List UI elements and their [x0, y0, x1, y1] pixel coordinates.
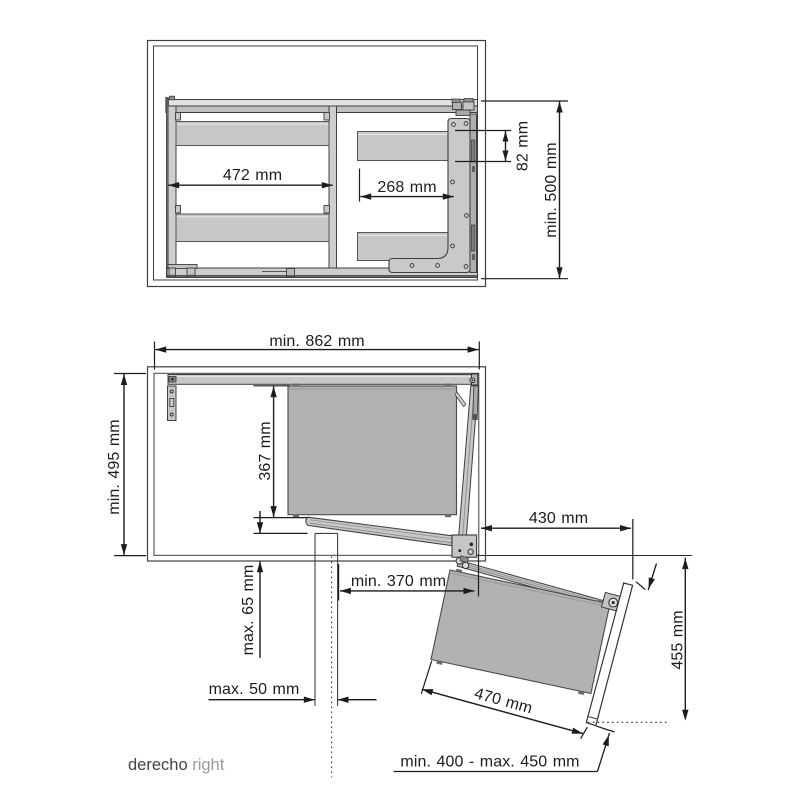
svg-text:min. 862 mm: min. 862 mm	[269, 333, 364, 350]
svg-text:430 mm: 430 mm	[529, 510, 588, 527]
svg-text:367 mm: 367 mm	[257, 421, 274, 480]
svg-text:min. 495 mm: min. 495 mm	[106, 419, 123, 514]
svg-text:470 mm: 470 mm	[472, 685, 534, 717]
svg-text:min. 500 mm: min. 500 mm	[543, 142, 560, 237]
svg-text:455 mm: 455 mm	[670, 610, 687, 669]
svg-text:min. 400 - max. 450 mm: min. 400 - max. 450 mm	[400, 754, 579, 771]
svg-text:268 mm: 268 mm	[377, 179, 436, 196]
svg-text:max. 50 mm: max. 50 mm	[209, 681, 300, 698]
svg-text:derecho right: derecho right	[128, 756, 225, 774]
svg-text:82 mm: 82 mm	[515, 121, 532, 171]
svg-text:max. 65 mm: max. 65 mm	[240, 565, 257, 656]
svg-text:min. 370 mm: min. 370 mm	[351, 573, 446, 590]
svg-text:472 mm: 472 mm	[223, 167, 282, 184]
